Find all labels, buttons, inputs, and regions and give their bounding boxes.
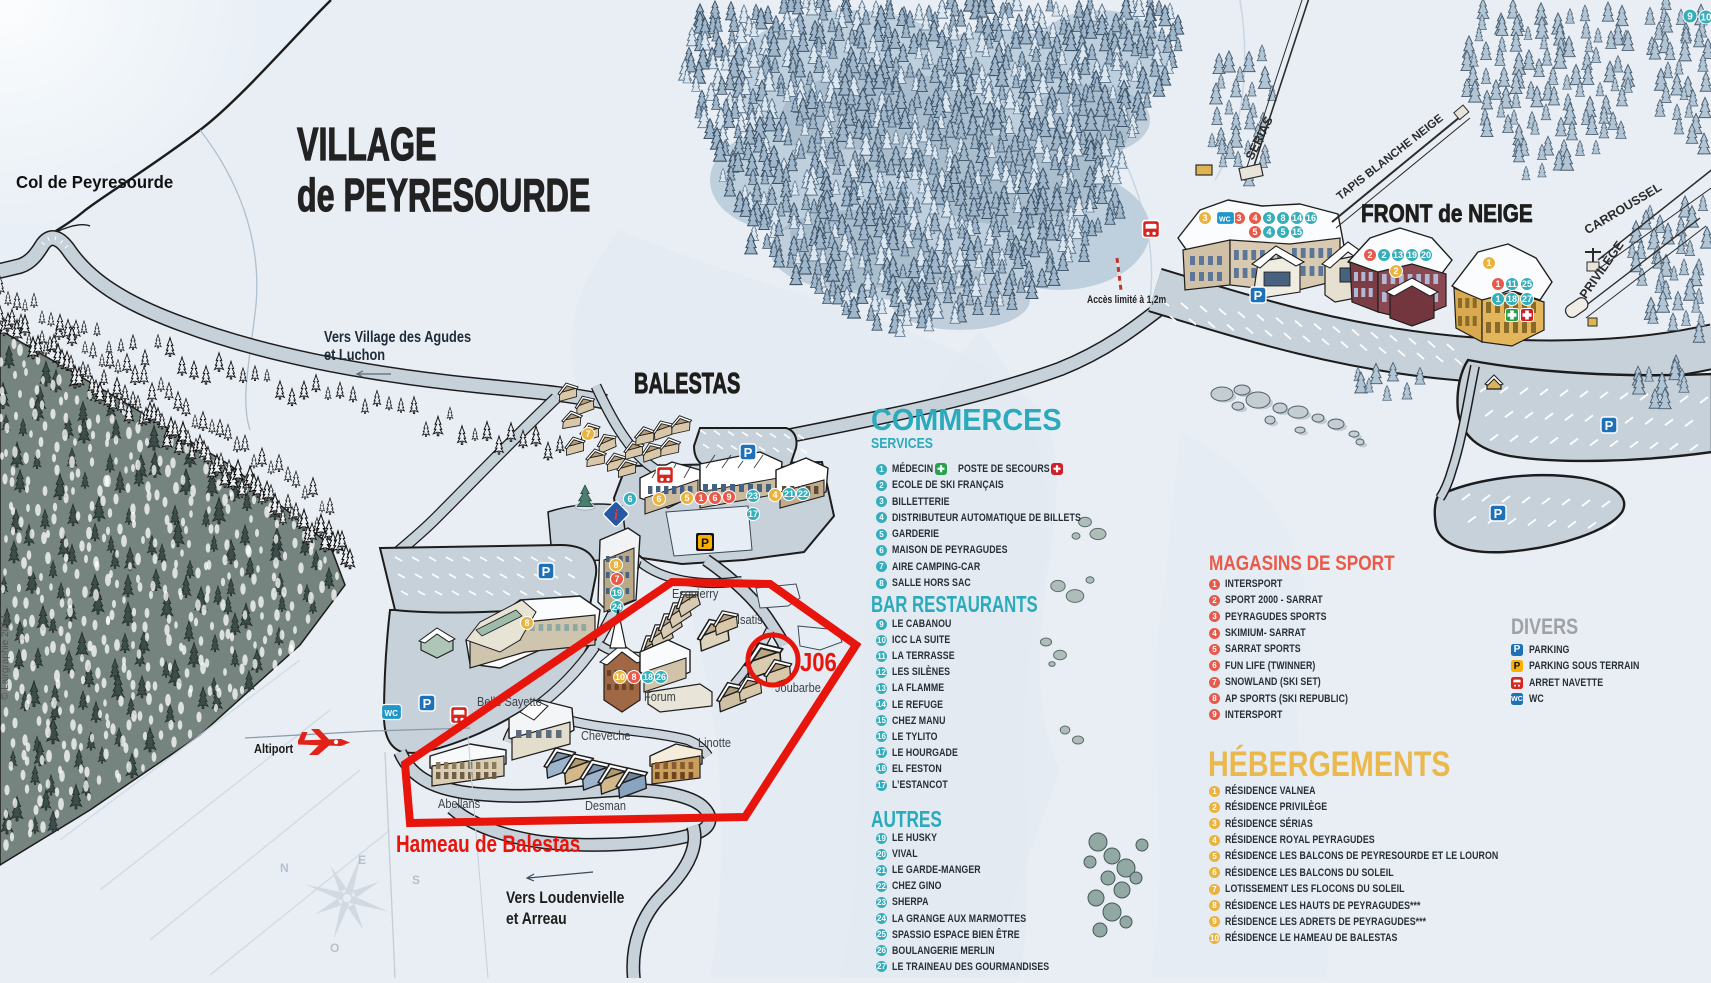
svg-text:18: 18 (643, 672, 653, 682)
svg-text:21: 21 (784, 489, 794, 499)
svg-text:VILLAGE: VILLAGE (297, 119, 436, 170)
svg-text:5: 5 (1280, 227, 1285, 237)
svg-text:P: P (744, 445, 753, 460)
svg-text:25: 25 (1522, 279, 1532, 289)
svg-text:10: 10 (1700, 13, 1711, 24)
svg-text:et Arreau: et Arreau (506, 910, 567, 929)
svg-text:8: 8 (613, 560, 618, 570)
svg-text:1: 1 (698, 493, 703, 503)
svg-text:4: 4 (772, 490, 777, 500)
svg-text:23: 23 (748, 491, 758, 501)
svg-text:© Lairgraphie 2014: © Lairgraphie 2014 (0, 614, 11, 700)
svg-text:Forum: Forum (644, 690, 676, 704)
svg-text:P: P (701, 536, 709, 550)
svg-text:6: 6 (627, 494, 632, 504)
svg-text:2: 2 (1367, 250, 1372, 260)
svg-text:O: O (330, 941, 339, 955)
svg-text:26: 26 (656, 672, 666, 682)
svg-text:8: 8 (1280, 213, 1285, 223)
svg-text:7: 7 (614, 574, 619, 584)
svg-text:6: 6 (712, 493, 717, 503)
svg-text:6: 6 (656, 494, 661, 504)
svg-text:2: 2 (1393, 266, 1398, 276)
svg-text:N: N (280, 861, 289, 875)
svg-text:FRONT de NEIGE: FRONT de NEIGE (1361, 199, 1533, 227)
svg-text:14: 14 (1292, 213, 1302, 223)
svg-text:Vers Loudenvielle: Vers Loudenvielle (506, 889, 625, 908)
svg-text:13: 13 (1393, 250, 1403, 260)
svg-text:22: 22 (798, 489, 808, 499)
svg-text:P: P (1605, 418, 1614, 433)
svg-text:5: 5 (1252, 227, 1257, 237)
svg-text:Altiport: Altiport (254, 741, 293, 756)
svg-text:Abellans: Abellans (438, 797, 480, 811)
svg-text:8: 8 (631, 672, 636, 682)
svg-text:S: S (412, 873, 420, 887)
svg-text:5: 5 (684, 493, 689, 503)
svg-text:Esquierry: Esquierry (672, 587, 719, 601)
svg-text:4: 4 (1252, 213, 1257, 223)
svg-text:Desman: Desman (585, 799, 626, 813)
svg-text:11: 11 (1507, 279, 1517, 289)
svg-text:Hameau de Balestas: Hameau de Balestas (396, 830, 580, 858)
svg-text:19: 19 (1407, 250, 1417, 260)
svg-text:P: P (542, 564, 551, 579)
svg-text:19: 19 (612, 588, 622, 598)
svg-text:3: 3 (1236, 213, 1241, 223)
svg-text:7: 7 (585, 429, 590, 439)
svg-text:17: 17 (748, 509, 758, 519)
svg-text:1: 1 (1486, 258, 1491, 268)
svg-text:Cheveche: Cheveche (581, 729, 631, 743)
svg-text:J06: J06 (800, 648, 837, 677)
svg-text:P: P (1494, 506, 1503, 521)
svg-text:Col de Peyresourde: Col de Peyresourde (16, 171, 173, 192)
svg-text:3: 3 (1202, 213, 1207, 223)
svg-text:15: 15 (1292, 227, 1302, 237)
svg-text:P: P (423, 696, 432, 711)
svg-text:2: 2 (1381, 250, 1386, 260)
svg-text:1: 1 (1495, 294, 1500, 304)
svg-text:27: 27 (1522, 294, 1532, 304)
svg-text:WC: WC (385, 709, 399, 718)
svg-text:P: P (1254, 288, 1263, 303)
svg-text:16: 16 (1306, 213, 1316, 223)
svg-text:9: 9 (1687, 12, 1693, 23)
svg-text:10: 10 (615, 672, 625, 682)
svg-text:4: 4 (1266, 227, 1271, 237)
svg-text:20: 20 (1421, 250, 1431, 260)
svg-text:24: 24 (612, 602, 622, 612)
svg-text:et Luchon: et Luchon (324, 347, 385, 365)
svg-text:1: 1 (1495, 279, 1500, 289)
svg-text:WC: WC (1219, 216, 1231, 223)
svg-text:Isatis: Isatis (737, 613, 763, 627)
svg-text:9: 9 (726, 492, 731, 502)
svg-text:Accès limité à 1,2m: Accès limité à 1,2m (1087, 294, 1166, 306)
svg-text:Vers Village des Agudes: Vers Village des Agudes (324, 329, 471, 347)
svg-text:8: 8 (524, 618, 529, 628)
svg-text:3: 3 (1266, 213, 1271, 223)
svg-text:18: 18 (1507, 294, 1517, 304)
svg-text:BALESTAS: BALESTAS (634, 367, 740, 400)
svg-text:Linotte: Linotte (698, 736, 731, 750)
svg-text:de PEYRESOURDE: de PEYRESOURDE (297, 170, 590, 221)
